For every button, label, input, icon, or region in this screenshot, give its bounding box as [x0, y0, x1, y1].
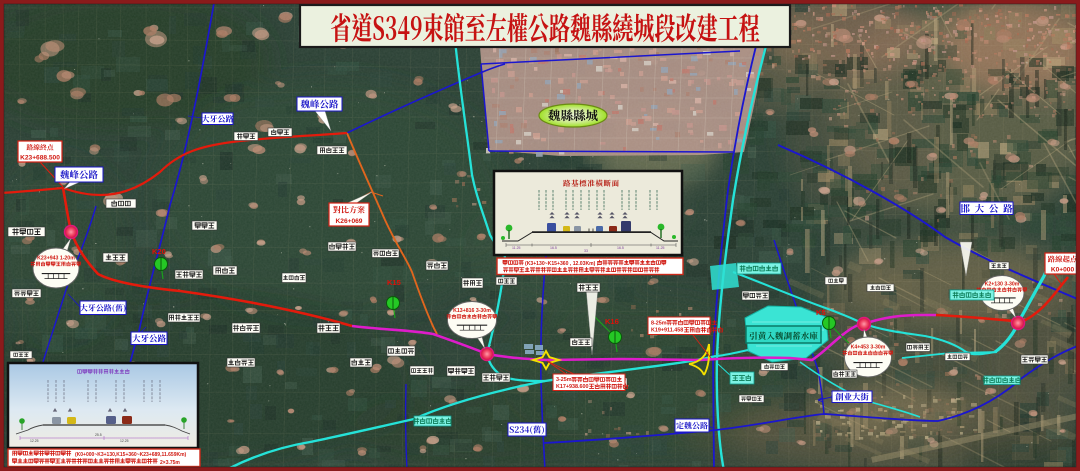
svg-text:K16: K16 — [605, 317, 619, 326]
svg-text:12.25: 12.25 — [30, 439, 39, 443]
svg-text:K23+688.500: K23+688.500 — [20, 154, 60, 161]
svg-text:12.25: 12.25 — [120, 439, 129, 443]
svg-text:25.5: 25.5 — [95, 433, 102, 437]
svg-text:16.5: 16.5 — [550, 246, 557, 250]
svg-text:11.25: 11.25 — [656, 246, 665, 250]
svg-text:16.5: 16.5 — [617, 246, 624, 250]
svg-text:(K0+000~K3+130,K15+360~K23+689: (K0+000~K3+130,K15+360~K23+689,11.659Km) — [75, 452, 187, 458]
svg-text:K0+000: K0+000 — [1051, 266, 1075, 273]
svg-text:K26+069: K26+069 — [336, 218, 363, 225]
svg-text:3-25m: 3-25m — [556, 377, 572, 383]
svg-text:K19+911.458: K19+911.458 — [651, 328, 683, 334]
svg-text:K15: K15 — [387, 278, 401, 287]
svg-text:11.25: 11.25 — [512, 246, 521, 250]
svg-text:K13+816 3-30m: K13+816 3-30m — [453, 308, 491, 314]
svg-text:33: 33 — [584, 249, 588, 253]
svg-text:K4+453 3-30m: K4+453 3-30m — [851, 345, 886, 351]
svg-text:K23+943 1-20m: K23+943 1-20m — [37, 256, 75, 262]
svg-text:8-25m: 8-25m — [651, 320, 667, 326]
svg-text:(K3+130~K15+360 , 12.03Km) ,: (K3+130~K15+360 , 12.03Km) , — [525, 261, 599, 267]
svg-text:K17+938.600: K17+938.600 — [556, 384, 589, 390]
svg-text:K5: K5 — [816, 308, 826, 317]
svg-text:K20: K20 — [152, 247, 166, 256]
svg-text:2×3.75m: 2×3.75m — [160, 460, 180, 466]
svg-text:K2+130 3-30m: K2+130 3-30m — [985, 282, 1020, 288]
